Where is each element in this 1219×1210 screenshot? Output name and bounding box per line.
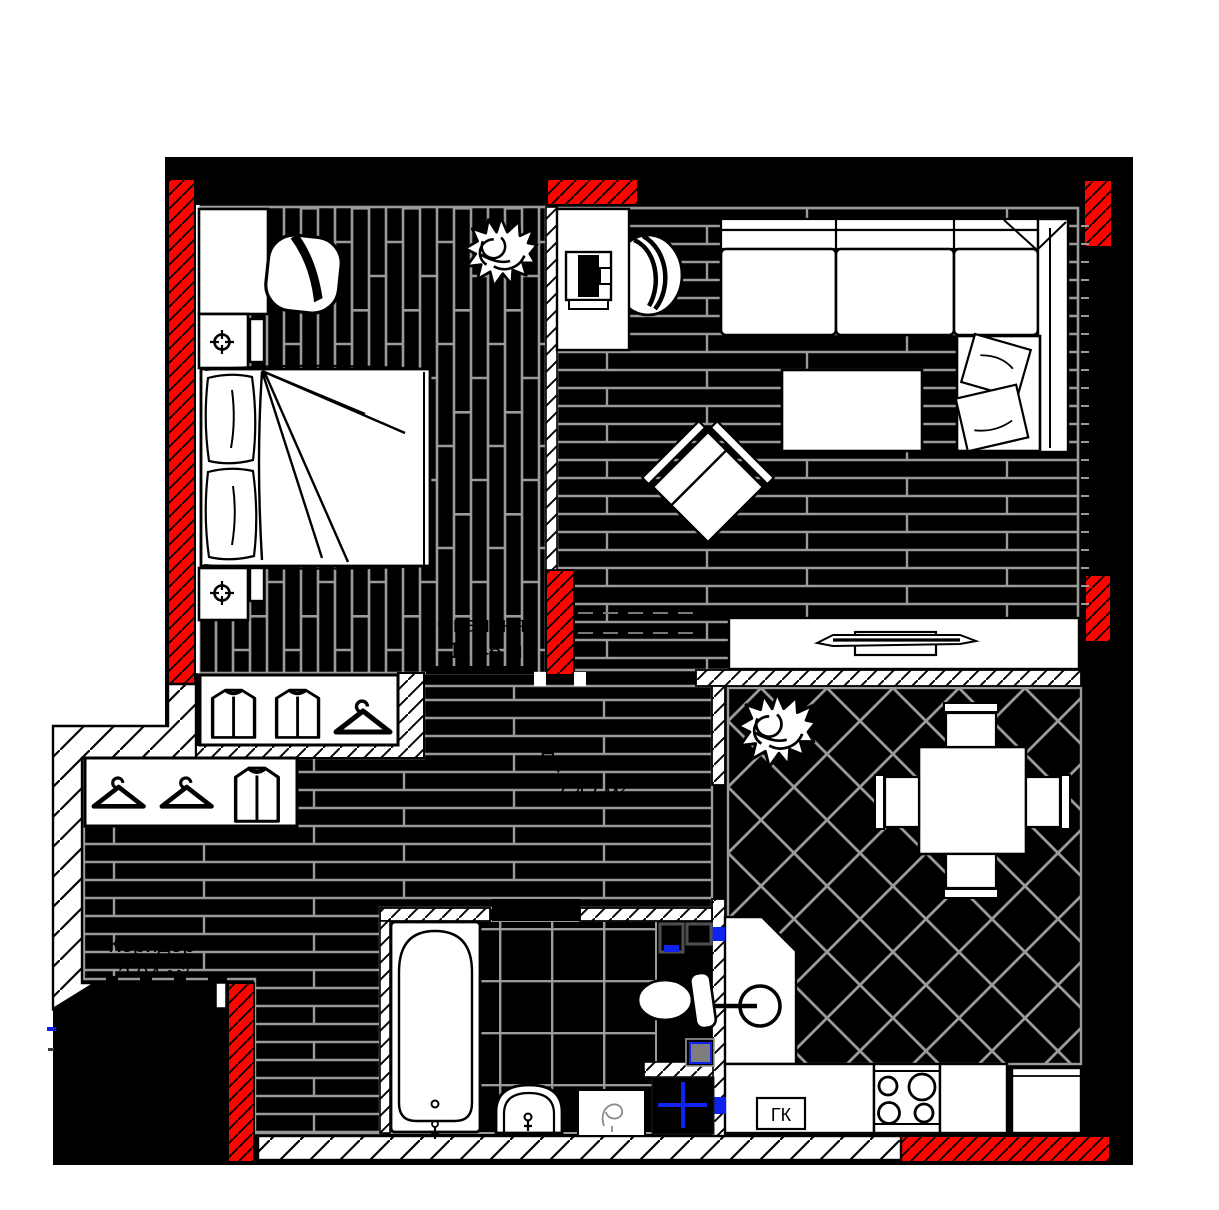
svg-text:Коридор: Коридор — [108, 932, 195, 957]
svg-text:7,42 м²: 7,42 м² — [555, 780, 626, 805]
svg-text:Прихожая: Прихожая — [540, 748, 642, 773]
svg-text:Спальня: Спальня — [437, 612, 525, 637]
svg-text:11,46 м²: 11,46 м² — [448, 638, 530, 663]
svg-text:ГК: ГК — [771, 1105, 792, 1125]
svg-text:3,04 м²: 3,04 м² — [118, 962, 189, 987]
